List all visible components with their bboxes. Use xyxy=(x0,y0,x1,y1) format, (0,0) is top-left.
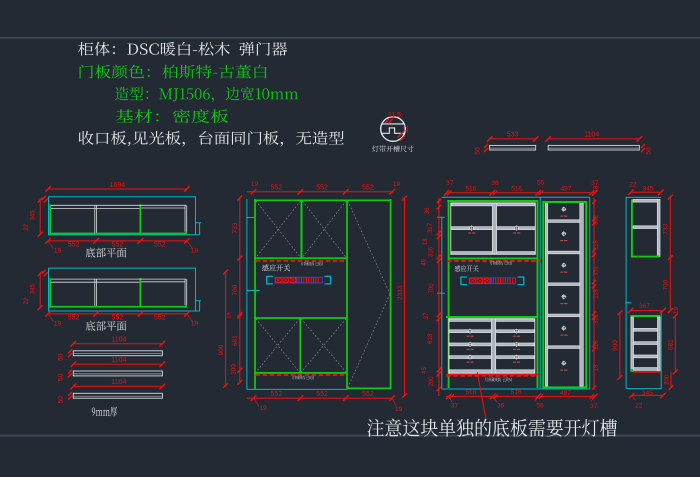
svg-text:55: 55 xyxy=(537,180,545,187)
svg-text:118: 118 xyxy=(593,289,599,299)
svg-text:18: 18 xyxy=(593,185,599,192)
svg-text:200: 200 xyxy=(429,376,435,387)
svg-text:18: 18 xyxy=(593,364,599,371)
svg-text:552: 552 xyxy=(112,314,124,321)
svg-text:345: 345 xyxy=(31,284,37,295)
svg-text:1104: 1104 xyxy=(111,337,126,344)
svg-text:19: 19 xyxy=(54,247,62,254)
svg-text:552: 552 xyxy=(154,241,166,248)
svg-text:1694: 1694 xyxy=(110,182,126,189)
svg-text:18: 18 xyxy=(423,238,429,245)
svg-text:118: 118 xyxy=(593,340,599,350)
svg-text:317: 317 xyxy=(428,222,434,233)
svg-text:516: 516 xyxy=(465,185,476,192)
svg-text:552: 552 xyxy=(362,391,374,398)
svg-text:552: 552 xyxy=(362,185,374,192)
svg-text:45: 45 xyxy=(422,367,428,374)
svg-text:50: 50 xyxy=(475,147,482,155)
svg-text:552: 552 xyxy=(270,391,282,398)
svg-text:37: 37 xyxy=(424,312,430,319)
svg-text:19: 19 xyxy=(251,181,259,188)
svg-text:733: 733 xyxy=(663,223,670,234)
svg-text:22: 22 xyxy=(635,402,643,409)
svg-text:37: 37 xyxy=(451,403,459,410)
svg-text:618: 618 xyxy=(428,333,434,344)
svg-text:552: 552 xyxy=(270,185,282,192)
svg-text:900: 900 xyxy=(612,340,619,351)
svg-text:552: 552 xyxy=(68,241,80,248)
svg-text:367: 367 xyxy=(639,303,650,310)
svg-text:19: 19 xyxy=(54,320,62,327)
svg-text:733: 733 xyxy=(232,222,239,233)
svg-text:50: 50 xyxy=(58,396,65,404)
svg-text:36: 36 xyxy=(425,207,431,214)
svg-text:533: 533 xyxy=(507,132,519,139)
svg-text:700: 700 xyxy=(232,284,239,295)
svg-text:497: 497 xyxy=(561,185,572,192)
svg-text:19: 19 xyxy=(259,405,267,412)
svg-text:352: 352 xyxy=(593,214,599,225)
svg-text:1104: 1104 xyxy=(111,357,126,364)
svg-text:36: 36 xyxy=(497,403,505,410)
svg-text:700: 700 xyxy=(429,283,435,294)
svg-text:1104: 1104 xyxy=(111,379,126,386)
svg-text:681: 681 xyxy=(668,339,675,350)
svg-text:552: 552 xyxy=(316,185,328,192)
svg-text:12: 12 xyxy=(403,125,410,133)
svg-text:1104: 1104 xyxy=(584,132,599,139)
svg-text:316: 316 xyxy=(428,246,434,257)
svg-text:552: 552 xyxy=(154,314,166,321)
svg-text:37: 37 xyxy=(590,403,598,410)
svg-text:351: 351 xyxy=(593,313,599,324)
svg-text:46: 46 xyxy=(422,258,428,265)
svg-text:2333: 2333 xyxy=(397,285,404,300)
svg-text:345: 345 xyxy=(643,186,654,193)
svg-text:700: 700 xyxy=(663,279,670,290)
svg-text:552: 552 xyxy=(316,391,328,398)
svg-text:19: 19 xyxy=(227,312,233,318)
svg-text:497: 497 xyxy=(560,390,571,397)
svg-text:552: 552 xyxy=(68,314,80,321)
svg-text:552: 552 xyxy=(112,241,124,248)
svg-text:900: 900 xyxy=(218,344,225,355)
svg-text:200: 200 xyxy=(664,374,670,385)
svg-text:50: 50 xyxy=(646,147,653,155)
svg-text:37: 37 xyxy=(446,180,454,187)
svg-text:19: 19 xyxy=(395,406,403,413)
svg-text:22: 22 xyxy=(24,223,30,230)
svg-text:22: 22 xyxy=(629,182,637,189)
svg-text:50: 50 xyxy=(58,373,65,381)
svg-text:19: 19 xyxy=(191,247,199,254)
svg-text:11.5: 11.5 xyxy=(388,112,401,119)
svg-text:351: 351 xyxy=(593,265,599,276)
svg-text:36: 36 xyxy=(491,180,499,187)
svg-text:681: 681 xyxy=(232,335,239,346)
svg-text:50: 50 xyxy=(58,353,65,361)
svg-text:345: 345 xyxy=(642,390,653,397)
svg-text:516: 516 xyxy=(511,389,522,396)
svg-text:55: 55 xyxy=(536,402,544,409)
svg-text:345: 345 xyxy=(31,210,37,221)
svg-text:19: 19 xyxy=(674,307,680,314)
svg-text:19: 19 xyxy=(393,181,401,188)
svg-text:22: 22 xyxy=(24,297,30,304)
svg-text:516: 516 xyxy=(465,389,476,396)
svg-text:200: 200 xyxy=(230,364,237,375)
svg-text:19: 19 xyxy=(191,320,199,327)
svg-text:516: 516 xyxy=(511,185,522,192)
svg-text:118: 118 xyxy=(593,240,599,250)
